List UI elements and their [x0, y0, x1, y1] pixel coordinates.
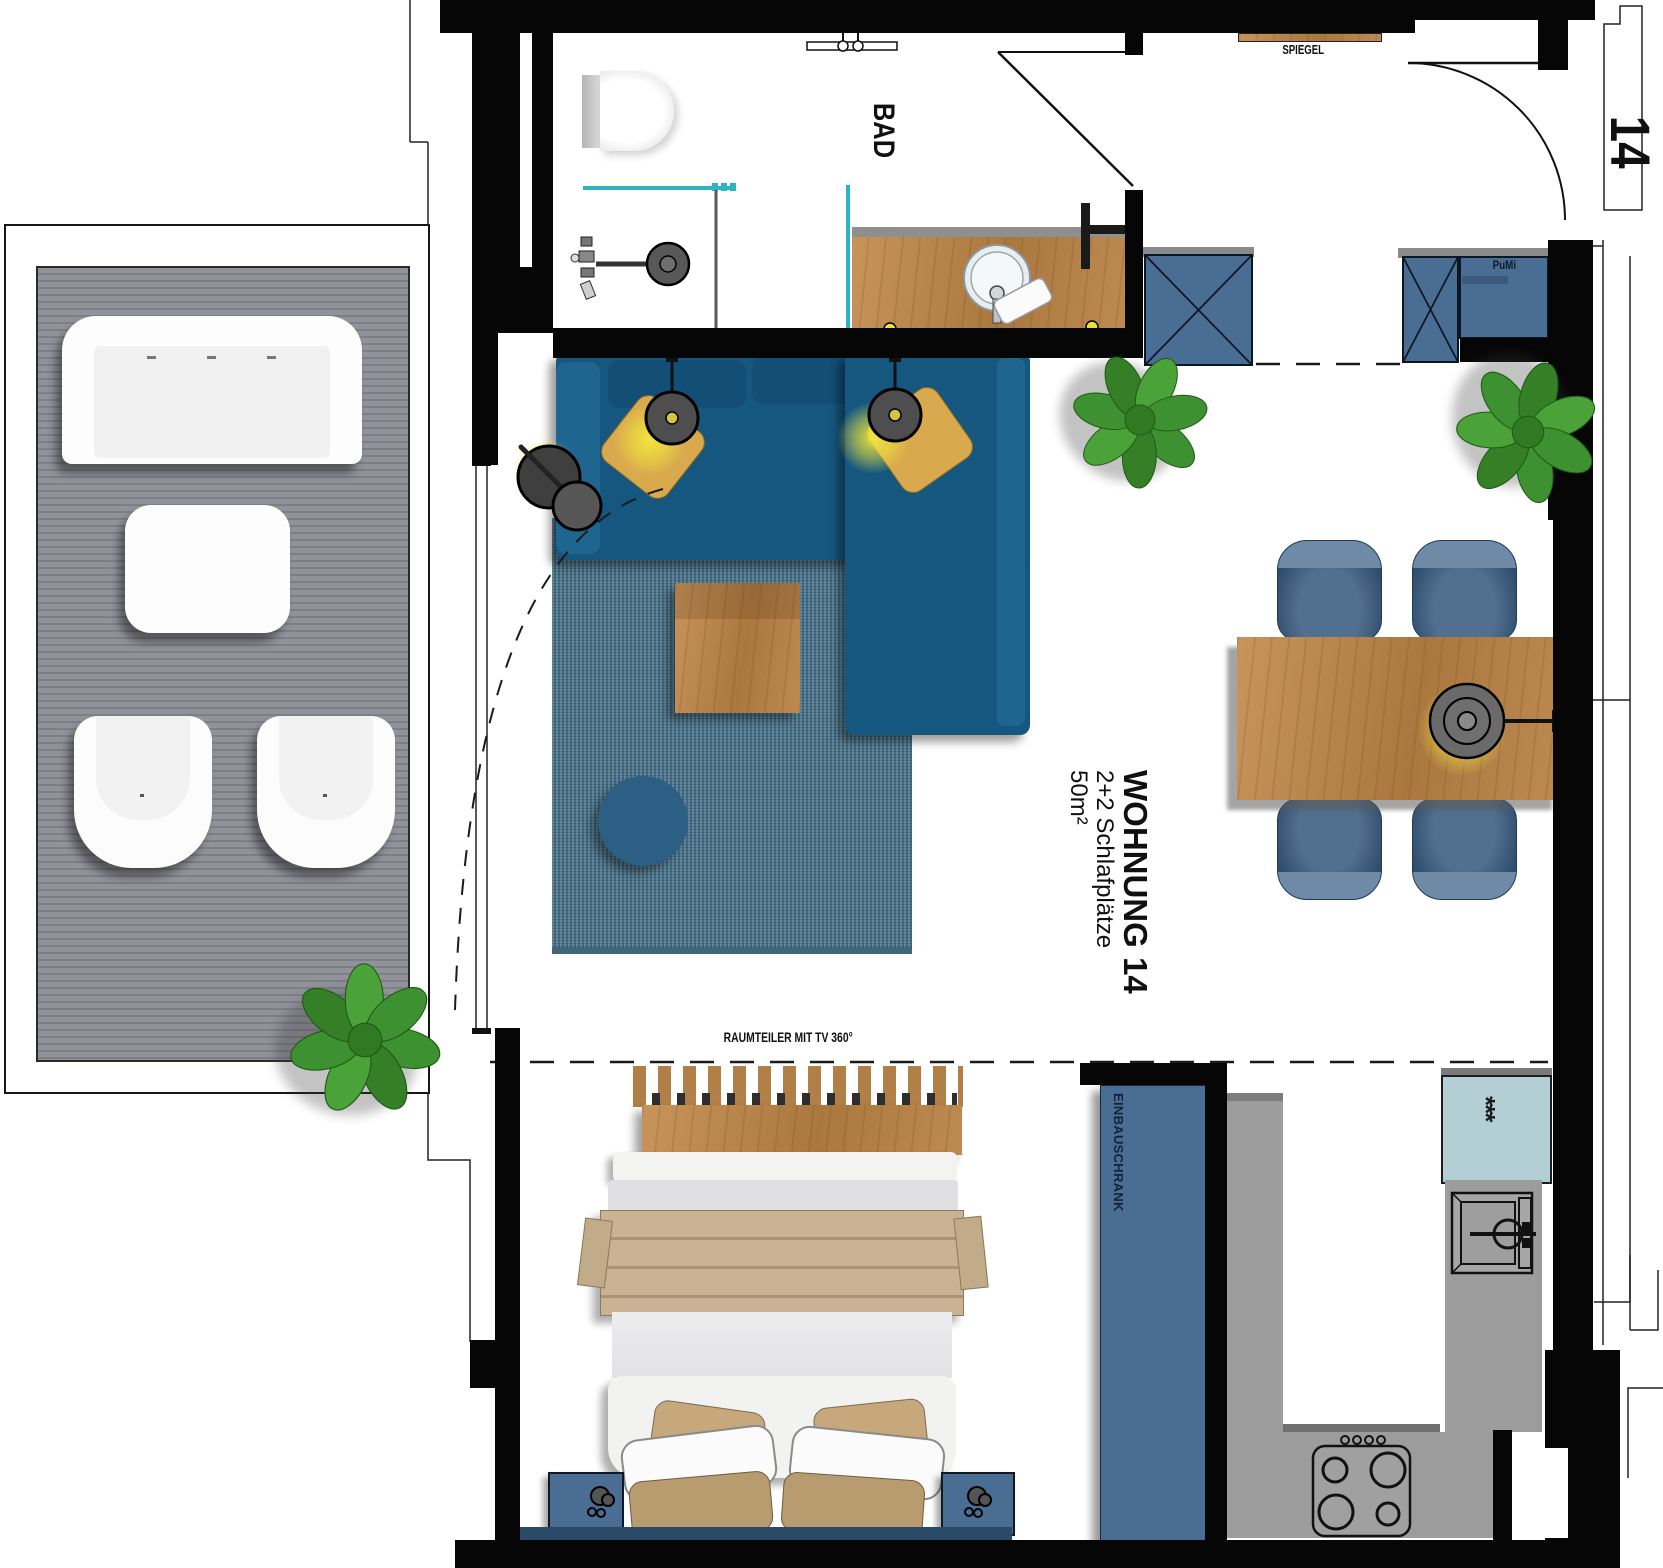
plant-icon	[1441, 339, 1613, 516]
apartment-title: WOHNUNG 14	[1117, 770, 1153, 1010]
mirror-label: SPIEGEL	[1258, 42, 1348, 57]
unit-number: 14	[1601, 107, 1659, 177]
room-divider-label: RAUMTEILER MIT TV 360°	[673, 1029, 903, 1045]
apartment-sleeping: 2+2 Schlafplätze	[1091, 770, 1117, 1010]
apartment-info: WOHNUNG 14 2+2 Schlafplätze 50m²	[1067, 770, 1153, 1010]
plant-icon	[263, 945, 456, 1133]
floorplan-wohnung-14: BAD SPIEGEL PuMi 14 WOHNUNG 14 2+2 Schla…	[0, 0, 1663, 1568]
built-in-wardrobe-label: EINBAUSCHRANK	[1110, 1093, 1126, 1193]
apartment-area: 50m²	[1065, 770, 1091, 1010]
plant-icon	[1035, 316, 1237, 517]
freezer-stars: ***	[1474, 1096, 1496, 1166]
pumi-label: PuMi	[1462, 258, 1546, 272]
plants-layer	[0, 0, 1663, 1568]
bathroom-label: BAD	[856, 85, 900, 175]
